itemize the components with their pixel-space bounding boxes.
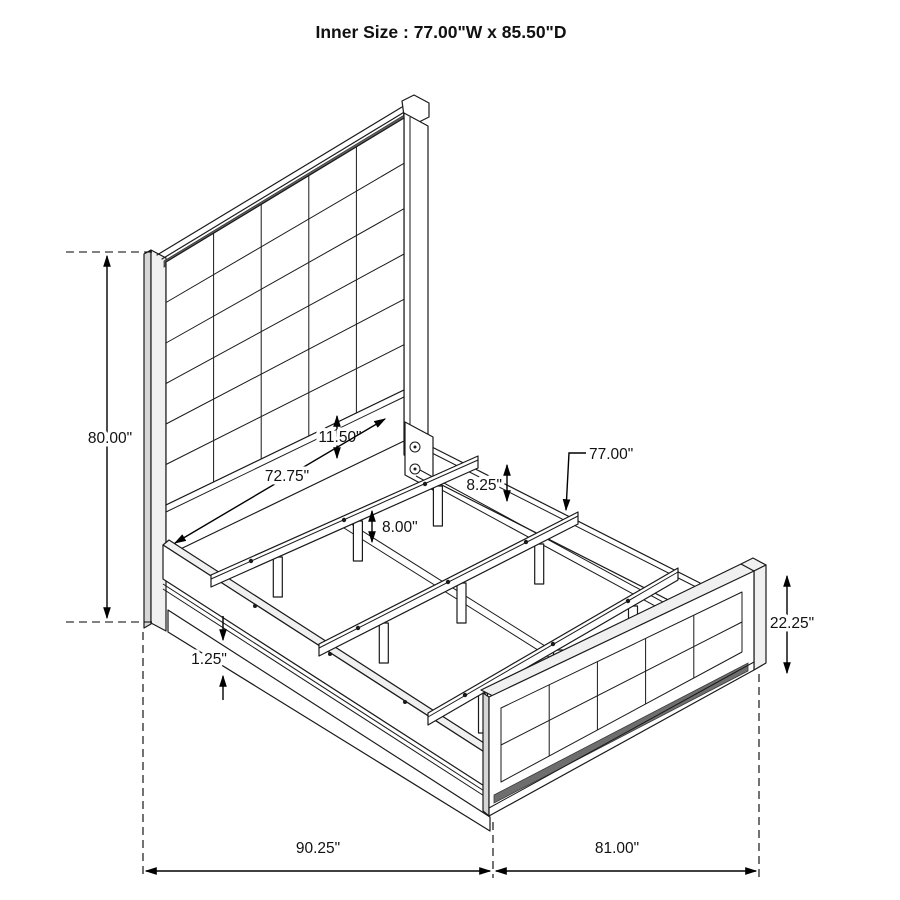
- dim-label-base-trim-height: 1.25": [191, 651, 227, 668]
- dim-slat-leg-height: 8.00": [372, 511, 418, 542]
- diagram-page: 80.00" 11.50" 72.75" 8.00" 8.25" 77.00" …: [0, 0, 900, 900]
- dim-label-slat-length: 77.00": [589, 446, 633, 463]
- dim-label-rail-top-height: 8.25": [466, 477, 502, 494]
- bed-dimension-diagram: 80.00" 11.50" 72.75" 8.00" 8.25" 77.00" …: [0, 0, 900, 900]
- dim-label-overall-depth: 90.25": [296, 840, 340, 857]
- diagram-title: Inner Size : 77.00"W x 85.50"D: [315, 22, 566, 42]
- headboard-right-post: [404, 113, 428, 468]
- dim-label-overall-width: 81.00": [595, 840, 639, 857]
- dim-footboard-height: 22.25": [770, 576, 814, 673]
- dim-label-slat-leg-height: 8.00": [382, 519, 418, 536]
- dim-headboard-height: 80.00": [66, 252, 152, 622]
- dim-label-footboard-height: 22.25": [770, 615, 814, 632]
- dim-label-head-rail-height: 11.50": [318, 429, 361, 446]
- footboard-right-side: [754, 565, 766, 670]
- dim-label-headboard-height: 80.00": [88, 430, 132, 447]
- dim-label-inner-width: 72.75": [265, 468, 309, 485]
- dim-slat-length-leader: 77.00": [566, 446, 633, 510]
- footboard: [481, 558, 766, 816]
